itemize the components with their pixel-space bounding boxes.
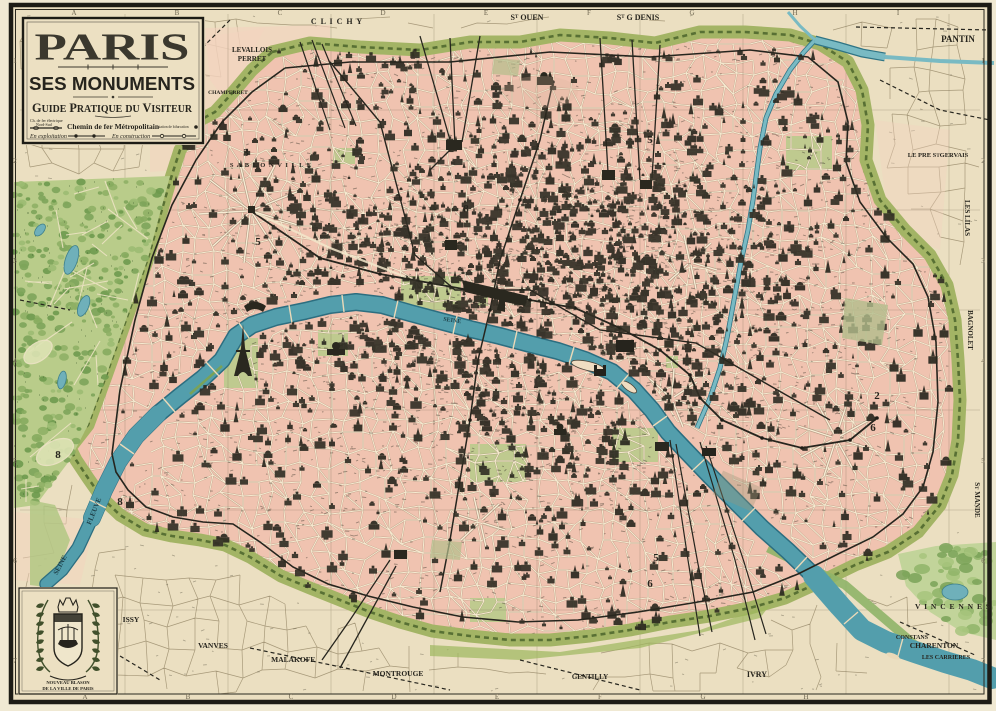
- svg-text:LEVALLOIS: LEVALLOIS: [232, 46, 272, 54]
- svg-text:DE LA VILLE DE PARIS: DE LA VILLE DE PARIS: [42, 686, 94, 691]
- svg-text:PARIS: PARIS: [35, 27, 190, 69]
- svg-text:6: 6: [870, 422, 876, 434]
- svg-text:A: A: [71, 9, 76, 17]
- svg-text:SES MONUMENTS: SES MONUMENTS: [29, 74, 195, 94]
- svg-text:LES LILAS: LES LILAS: [963, 200, 971, 236]
- svg-text:Chemin de fer Métropolitain: Chemin de fer Métropolitain: [67, 122, 160, 131]
- svg-text:GUIDE PRATIQUE DU VISITEUR: GUIDE PRATIQUE DU VISITEUR: [32, 101, 193, 115]
- svg-text:MONTROUGE: MONTROUGE: [373, 669, 424, 678]
- svg-text:B: B: [175, 9, 180, 17]
- svg-text:2: 2: [981, 157, 985, 165]
- svg-text:5: 5: [647, 134, 653, 146]
- svg-text:G: G: [700, 693, 705, 701]
- svg-text:MALAKOFF: MALAKOFF: [271, 655, 315, 664]
- svg-text:H: H: [792, 9, 797, 17]
- svg-text:3: 3: [13, 257, 17, 265]
- svg-text:7: 7: [981, 657, 985, 665]
- svg-text:5: 5: [981, 457, 985, 465]
- svg-text:B: B: [186, 693, 191, 701]
- svg-text:BAGNOLET: BAGNOLET: [966, 310, 974, 350]
- svg-text:1: 1: [981, 57, 985, 65]
- svg-text:CHAMPERRET: CHAMPERRET: [208, 90, 248, 96]
- svg-text:5: 5: [255, 236, 261, 248]
- svg-text:PANTIN: PANTIN: [941, 34, 975, 44]
- svg-text:station de bifurcation: station de bifurcation: [158, 125, 189, 129]
- svg-text:C L I C H Y: C L I C H Y: [311, 17, 363, 26]
- svg-text:En construction: En construction: [111, 134, 150, 140]
- svg-text:6: 6: [13, 557, 17, 565]
- svg-text:H: H: [803, 693, 808, 701]
- svg-text:Nord-Sud: Nord-Sud: [36, 122, 52, 127]
- svg-text:IVRY: IVRY: [747, 670, 767, 679]
- svg-text:D: D: [380, 9, 385, 17]
- svg-text:6: 6: [647, 578, 653, 590]
- svg-text:S A B L O N V I L L E: S A B L O N V I L L E: [230, 162, 312, 169]
- svg-text:NOUVEAU BLASON: NOUVEAU BLASON: [46, 680, 90, 685]
- svg-text:LE PRE STGERVAIS: LE PRE STGERVAIS: [908, 152, 969, 159]
- svg-text:G: G: [689, 9, 694, 17]
- svg-text:8: 8: [117, 496, 123, 508]
- svg-text:3: 3: [243, 147, 249, 159]
- svg-text:1: 1: [13, 57, 17, 65]
- svg-text:LES CARRIERES: LES CARRIERES: [922, 655, 971, 661]
- svg-text:C: C: [289, 693, 294, 701]
- svg-text:D: D: [391, 693, 396, 701]
- svg-text:5: 5: [13, 457, 17, 465]
- svg-text:F: F: [587, 9, 591, 17]
- svg-text:C: C: [278, 9, 283, 17]
- svg-text:CHARENTON: CHARENTON: [910, 641, 959, 650]
- svg-text:PERRET: PERRET: [238, 55, 267, 63]
- svg-text:5: 5: [653, 552, 659, 564]
- svg-text:F: F: [598, 693, 602, 701]
- svg-text:4: 4: [13, 357, 17, 365]
- svg-text:E: E: [484, 9, 488, 17]
- svg-text:7: 7: [13, 657, 17, 665]
- svg-text:2: 2: [13, 157, 17, 165]
- svg-text:2: 2: [874, 390, 880, 402]
- svg-text:V I N C E N N E S: V I N C E N N E S: [915, 602, 991, 611]
- svg-text:3: 3: [981, 257, 985, 265]
- svg-text:4: 4: [981, 357, 985, 365]
- svg-text:8: 8: [463, 203, 469, 215]
- svg-text:E: E: [495, 693, 499, 701]
- svg-text:6: 6: [981, 557, 985, 565]
- svg-text:8: 8: [55, 449, 61, 461]
- svg-text:GENTILLY: GENTILLY: [572, 673, 608, 681]
- svg-text:ISSY: ISSY: [123, 615, 140, 624]
- svg-text:En exploitation: En exploitation: [29, 134, 67, 140]
- svg-text:VANVES: VANVES: [198, 641, 228, 650]
